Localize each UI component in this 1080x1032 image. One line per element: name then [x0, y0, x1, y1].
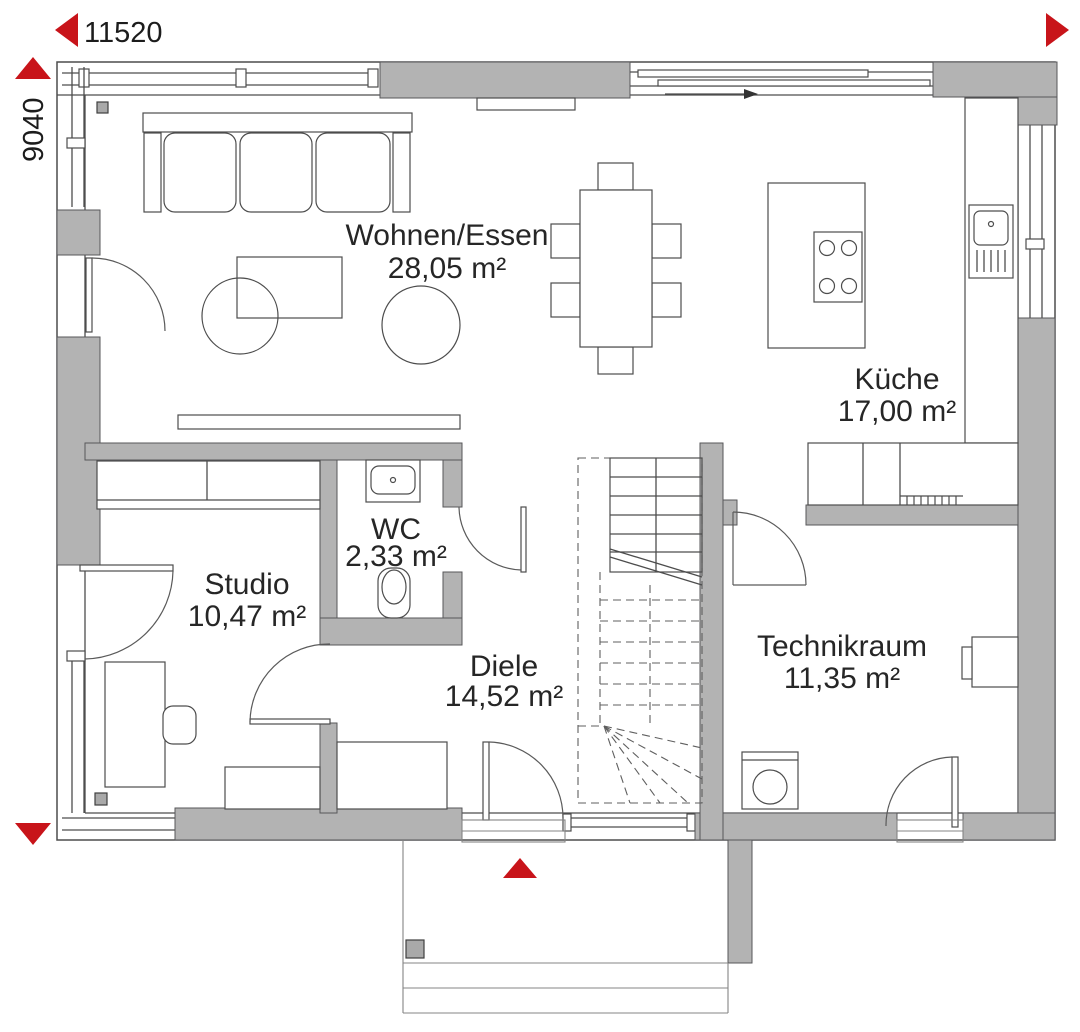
dimension-arrow-down-icon	[15, 823, 51, 845]
wall-left-pier1	[57, 210, 100, 255]
wall-studio-wc-divider	[320, 460, 337, 618]
room-label-diele-name: Diele	[470, 650, 538, 683]
dining-chair	[598, 163, 633, 190]
floor-plan: 11520 9040 Wohnen/Essen 28,05 m² Küche 1…	[0, 0, 1080, 1032]
wall-top-center	[380, 62, 630, 98]
wall-bottom-center	[695, 813, 897, 840]
wall-wc-right-upper	[443, 460, 462, 507]
sideboard	[178, 415, 460, 429]
wardrobe	[97, 461, 320, 509]
dimension-arrow-up-icon	[15, 57, 51, 79]
room-label-kueche-area: 17,00 m²	[838, 395, 956, 428]
heating-unit-panel	[962, 647, 972, 679]
wall-studio-top	[85, 443, 462, 460]
wall-right-upper	[1018, 97, 1057, 125]
room-label-wohnen-area: 28,05 m²	[388, 252, 506, 285]
wall-niche	[477, 98, 575, 110]
cabinet-studio	[225, 767, 320, 809]
dining-chair	[551, 224, 580, 258]
wall-stair-technik	[700, 443, 723, 840]
wall-top-right	[933, 62, 1057, 97]
porch-post	[406, 940, 424, 958]
wall-wc-bottom	[320, 618, 462, 645]
room-label-kueche-name: Küche	[854, 363, 939, 396]
room-label-wohnen-name: Wohnen/Essen	[346, 219, 549, 252]
porch-column	[728, 840, 752, 963]
sofa-cushion	[240, 133, 312, 212]
desk	[105, 662, 165, 787]
desk-chair	[163, 706, 196, 744]
column-post-living	[97, 102, 108, 113]
wall-studio-diele-stub	[320, 723, 337, 813]
dining-chair	[652, 224, 681, 258]
room-label-studio-area: 10,47 m²	[188, 600, 306, 633]
sofa-armrest-right	[393, 133, 410, 212]
cabinet-diele	[337, 742, 447, 809]
room-label-wc-area: 2,33 m²	[345, 540, 447, 573]
sofa-cushion	[316, 133, 390, 212]
dimension-height: 9040	[18, 97, 50, 162]
dimension-arrow-left-icon	[55, 13, 78, 47]
room-label-diele-area: 14,52 m²	[445, 680, 563, 713]
dimension-width: 11520	[84, 17, 163, 49]
sofa-backrest	[143, 113, 412, 132]
wall-bottom-left	[175, 808, 462, 840]
column-post-studio	[95, 793, 107, 805]
sofa-armrest-left	[144, 133, 161, 212]
wall-bottom-right	[963, 813, 1055, 840]
room-label-technik-area: 11,35 m²	[784, 662, 900, 695]
wall-right-main	[1018, 318, 1055, 840]
wall-kueche-technik	[806, 505, 1018, 525]
sofa-cushion	[164, 133, 236, 212]
entrance-arrow-icon	[503, 858, 537, 878]
kitchen-island	[768, 183, 865, 348]
room-label-technik-name: Technikraum	[757, 630, 927, 663]
heating-unit	[972, 637, 1018, 687]
dining-chair	[652, 283, 681, 317]
dining-table	[580, 190, 652, 347]
dimension-arrow-right-icon	[1046, 13, 1069, 47]
dining-chair	[551, 283, 580, 317]
porch	[403, 840, 728, 1013]
room-label-studio-name: Studio	[204, 568, 289, 601]
dining-chair	[598, 347, 633, 374]
kitchen-sink	[969, 205, 1013, 278]
wall-wc-right-lower	[443, 572, 462, 618]
